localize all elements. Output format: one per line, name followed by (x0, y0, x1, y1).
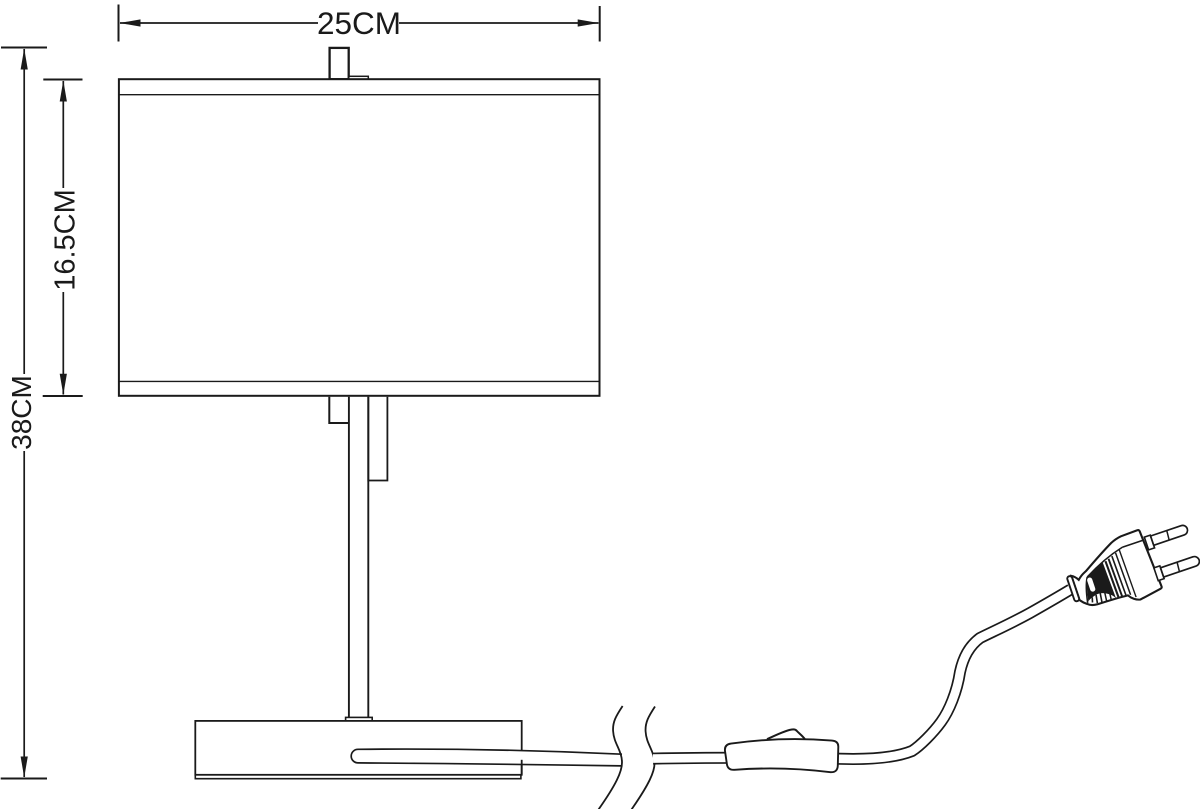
svg-text:38CM: 38CM (6, 375, 37, 450)
svg-text:16.5CM: 16.5CM (50, 189, 82, 291)
svg-text:25CM: 25CM (317, 5, 401, 41)
